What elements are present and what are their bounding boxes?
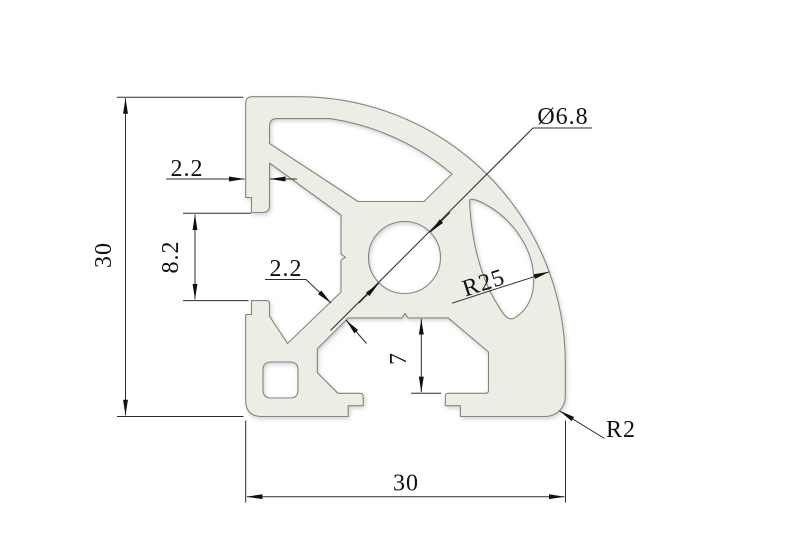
leader-line: [265, 280, 331, 304]
leader-line: [346, 320, 367, 344]
leader-line: [560, 411, 605, 439]
dim-width-label: 30: [393, 471, 419, 497]
dimension-slot-opening-8-2: 8.2: [158, 213, 251, 300]
dim-hole-label: Ø6.8: [537, 104, 588, 130]
dim-web-label: 2.2: [270, 256, 303, 282]
dim-height-label: 30: [91, 242, 117, 268]
dimension-radius-r2: R2: [560, 411, 636, 443]
dimension-width-30: 30: [246, 421, 566, 503]
technical-drawing-canvas: 30 2.2 8.2 2.2 Ø6.8 R25 R2: [0, 0, 804, 557]
dim-wall-label: 2.2: [171, 156, 204, 182]
dim-edge-radius-label: R2: [606, 417, 636, 443]
dim-slot-depth-label: 7: [386, 352, 412, 365]
dimension-slot-depth-7: 7: [386, 319, 441, 393]
technical-drawing-page: 30 2.2 8.2 2.2 Ø6.8 R25 R2: [0, 0, 804, 557]
dim-slot-opening-label: 8.2: [158, 241, 184, 274]
